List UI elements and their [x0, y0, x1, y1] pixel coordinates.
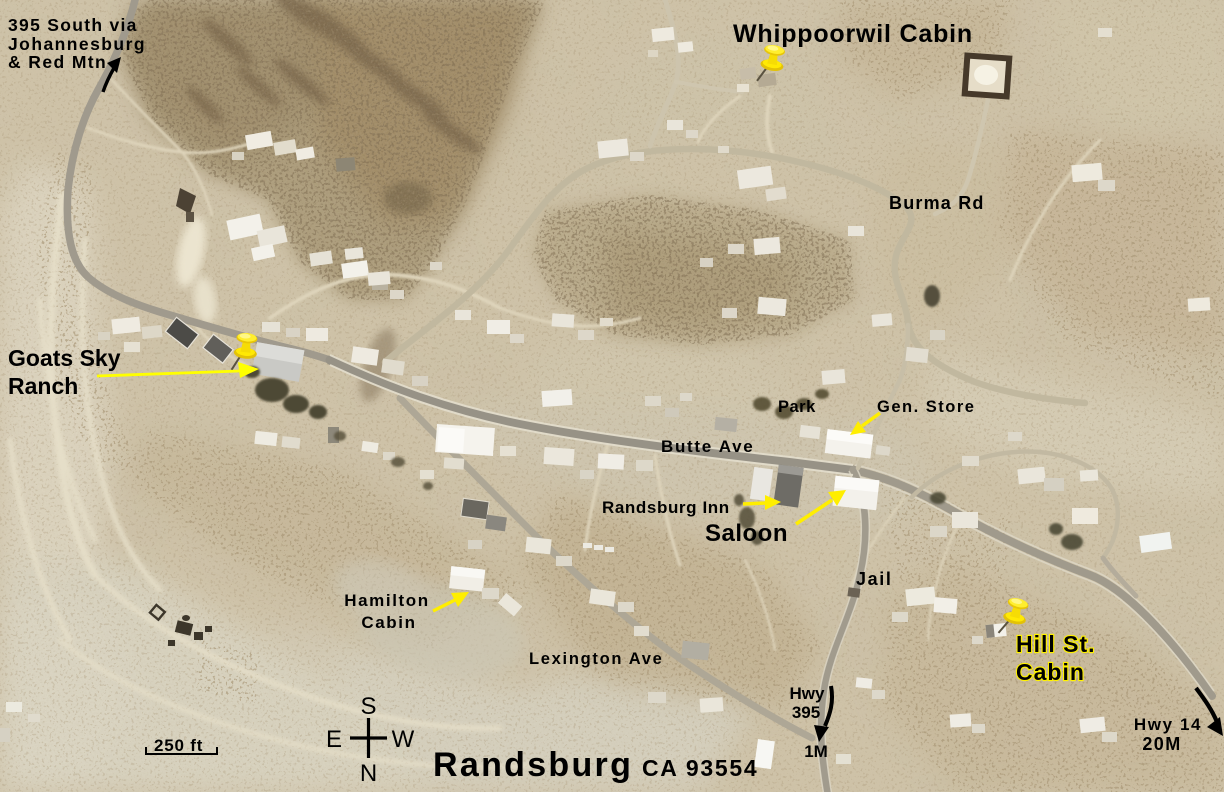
- svg-text:Randsburg: Randsburg: [433, 746, 633, 784]
- svg-text:CA 93554: CA 93554: [642, 755, 758, 781]
- svg-text:1M: 1M: [804, 742, 828, 761]
- svg-text:Randsburg Inn: Randsburg Inn: [602, 498, 730, 517]
- svg-text:395: 395: [792, 703, 820, 722]
- svg-text:395 South via: 395 South via: [8, 15, 138, 35]
- svg-text:Cabin: Cabin: [1016, 659, 1085, 685]
- svg-text:20M: 20M: [1142, 734, 1181, 754]
- svg-text:Saloon: Saloon: [705, 520, 788, 547]
- svg-text:Jail: Jail: [856, 569, 892, 589]
- svg-text:S: S: [360, 693, 376, 720]
- svg-text:W: W: [392, 726, 415, 753]
- svg-text:Whippoorwil Cabin: Whippoorwil Cabin: [733, 20, 973, 48]
- svg-text:& Red Mtn: & Red Mtn: [8, 52, 107, 72]
- svg-text:Hamilton: Hamilton: [344, 591, 430, 610]
- svg-text:Goats Sky: Goats Sky: [8, 345, 121, 371]
- svg-text:E: E: [326, 726, 342, 753]
- svg-text:Johannesburg: Johannesburg: [8, 34, 146, 54]
- svg-text:Burma Rd: Burma Rd: [889, 193, 985, 213]
- svg-text:Ranch: Ranch: [8, 373, 78, 399]
- svg-text:Butte Ave: Butte Ave: [661, 437, 754, 456]
- svg-text:Hwy 14: Hwy 14: [1134, 715, 1202, 734]
- svg-text:Lexington Ave: Lexington Ave: [529, 650, 664, 668]
- svg-text:250 ft: 250 ft: [154, 736, 203, 755]
- svg-text:Hill St.: Hill St.: [1016, 631, 1096, 657]
- svg-text:Hwy: Hwy: [790, 684, 826, 703]
- svg-text:N: N: [360, 760, 377, 787]
- svg-text:Park: Park: [778, 398, 816, 416]
- svg-text:Cabin: Cabin: [361, 613, 416, 632]
- svg-text:Gen. Store: Gen. Store: [877, 398, 975, 416]
